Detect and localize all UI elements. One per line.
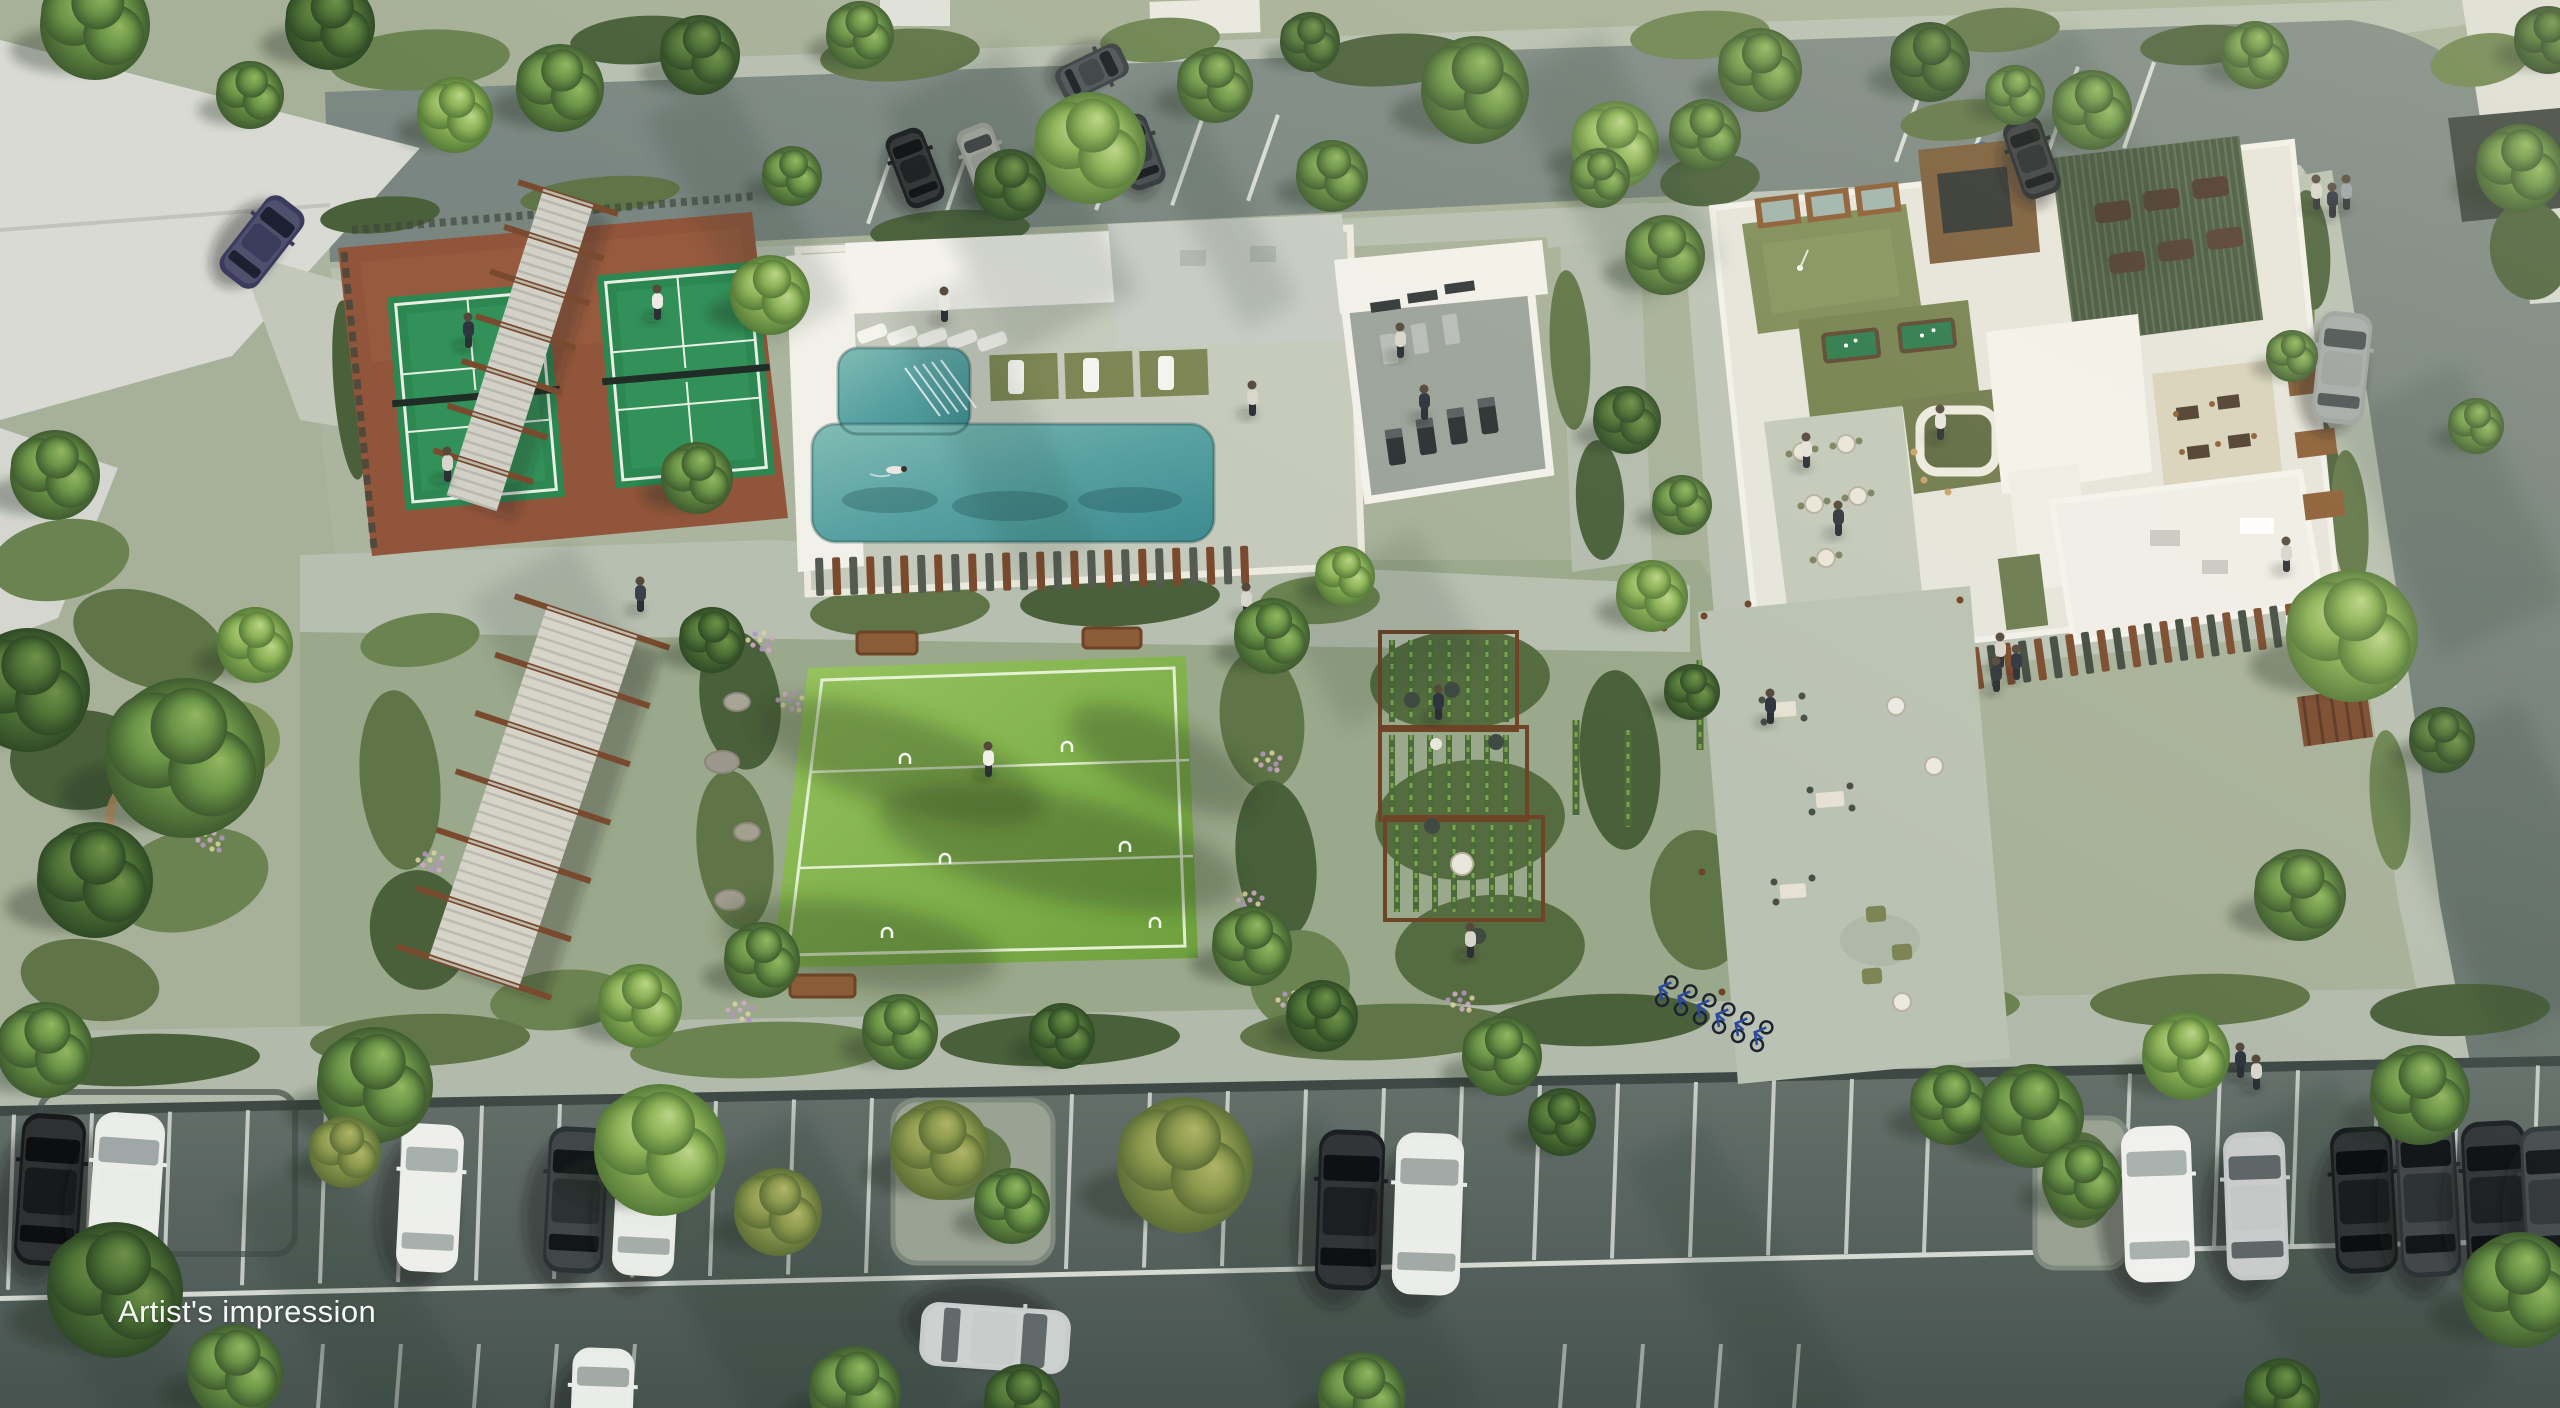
aerial-render: ♿ — [0, 0, 2560, 1408]
sunlight-overlay — [0, 0, 2560, 1408]
scene-canvas: ♿ — [0, 0, 2560, 1408]
caption: Artist's impression — [118, 1294, 376, 1330]
